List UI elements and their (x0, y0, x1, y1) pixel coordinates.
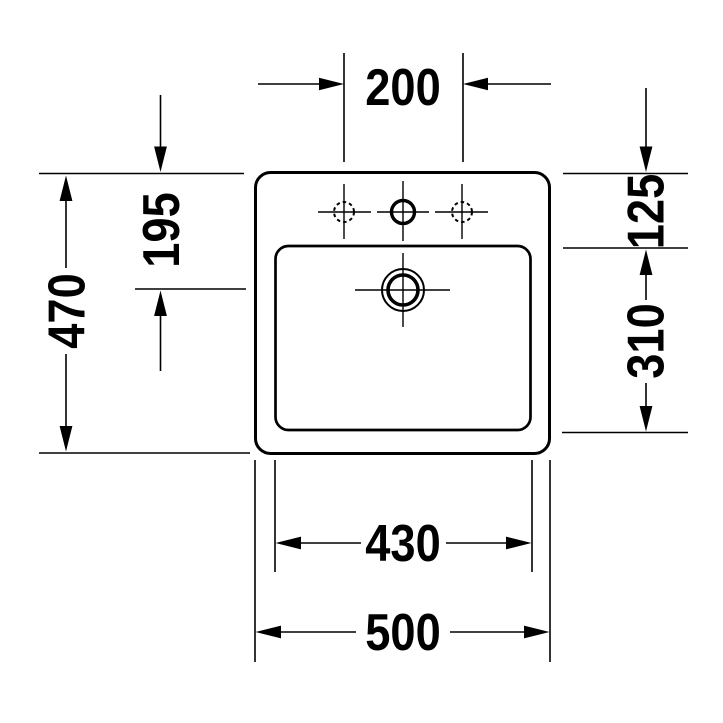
dim-label-overall-width: 500 (365, 604, 440, 662)
dimension-tap-hole-spacing: 200 (258, 53, 551, 162)
arrowhead-down-icon (640, 147, 653, 173)
dim-label-basin-inner-depth: 310 (618, 303, 676, 378)
arrowhead-right-icon (506, 537, 532, 550)
dimension-basin-inner-width: 430 (275, 460, 532, 573)
arrowhead-right-icon (319, 78, 344, 90)
dimension-rim-to-basin-edge: 125 (563, 88, 688, 249)
arrowhead-left-icon (256, 626, 282, 639)
arrowhead-left-icon (463, 78, 488, 90)
technical-drawing-canvas: 200 470 195 125 (0, 0, 723, 723)
arrowhead-right-icon (524, 626, 550, 639)
arrowhead-up-icon (640, 250, 653, 276)
tap-holes (318, 181, 488, 241)
arrowhead-left-icon (276, 537, 302, 550)
arrowhead-up-icon (154, 291, 167, 317)
dim-label-basin-inner-width: 430 (365, 515, 440, 573)
dimension-rim-to-drain: 195 (133, 95, 246, 371)
dim-label-rim-to-drain: 195 (133, 192, 191, 267)
drain (355, 253, 450, 327)
dim-label-overall-depth: 470 (39, 273, 97, 348)
dim-label-rim-to-basin-edge: 125 (618, 174, 676, 249)
arrowhead-down-icon (640, 406, 653, 432)
arrowhead-down-icon (154, 147, 167, 173)
arrowhead-down-icon (60, 426, 73, 452)
arrowhead-up-icon (60, 176, 73, 202)
dim-label-tap-hole-spacing: 200 (365, 59, 440, 117)
washbasin-diagram: 200 470 195 125 (0, 0, 723, 723)
dimension-basin-inner-depth: 310 (562, 250, 688, 433)
